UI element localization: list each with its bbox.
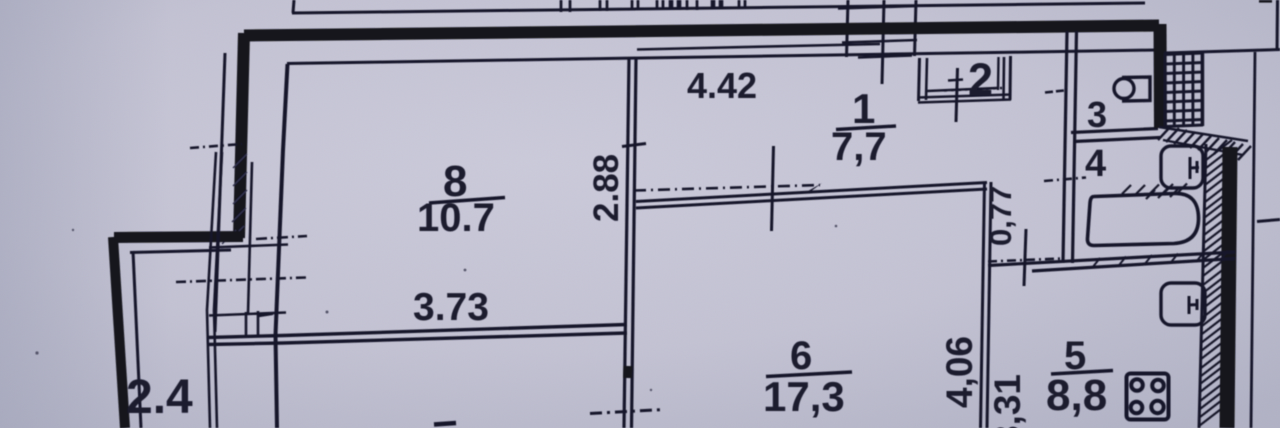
svg-text:3: 3 xyxy=(1087,94,1107,135)
svg-text:2.4: 2.4 xyxy=(126,371,193,424)
svg-text:4,06: 4,06 xyxy=(939,336,980,408)
svg-text:4: 4 xyxy=(1085,143,1106,185)
svg-text:0,77: 0,77 xyxy=(983,186,1018,246)
svg-text:6: 6 xyxy=(790,334,812,378)
svg-text:17,3: 17,3 xyxy=(763,373,845,420)
svg-text:3.73: 3.73 xyxy=(413,286,489,329)
svg-text:4.42: 4.42 xyxy=(687,65,757,106)
svg-text:10.7: 10.7 xyxy=(417,196,495,240)
svg-text:2: 2 xyxy=(968,54,993,105)
svg-text:8,8: 8,8 xyxy=(1046,371,1107,420)
svg-text:7,7: 7,7 xyxy=(831,125,887,169)
svg-text:3,31: 3,31 xyxy=(987,374,1028,428)
svg-text:2.88: 2.88 xyxy=(587,154,626,222)
